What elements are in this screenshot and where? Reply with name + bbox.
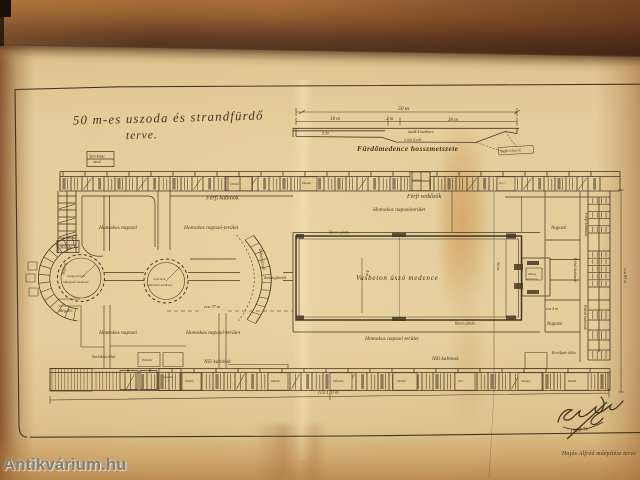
svg-text:Homokos napozó: Homokos napozó — [98, 330, 137, 336]
svg-text:feljáró lépcső: feljáró lépcső — [501, 148, 521, 153]
svg-text:Napozó: Napozó — [546, 322, 563, 327]
svg-text:Gyógyvizű és: Gyógyvizű és — [67, 274, 86, 278]
svg-text:0.90: 0.90 — [322, 132, 329, 136]
svg-text:W.C.: W.C. — [458, 379, 464, 383]
svg-text:cca 37 m: cca 37 m — [204, 304, 221, 309]
svg-text:Zuhanyfürdők: Zuhanyfürdők — [264, 275, 287, 280]
svg-text:Homokos napozó terület: Homokos napozó terület — [364, 336, 419, 342]
svg-text:Szén koksz: Szén koksz — [89, 155, 105, 159]
svg-text:Homokos napozó-terület: Homokos napozó-terület — [185, 330, 241, 336]
svg-text:Hajós Alfréd műépítész terve: Hajós Alfréd műépítész terve — [561, 450, 636, 457]
svg-text:Megálló: Megálló — [58, 308, 72, 313]
svg-text:terve.: terve. — [126, 129, 158, 142]
svg-text:Napozó: Napozó — [550, 226, 567, 231]
svg-text:Öltöző: Öltöző — [230, 181, 239, 186]
svg-text:hidegvizű medence: hidegvizű medence — [63, 280, 89, 284]
svg-text:4 m: 4 m — [365, 270, 370, 276]
svg-text:Férfi vetkőzők: Férfi vetkőzők — [406, 193, 441, 200]
svg-text:Zuhany: Zuhany — [521, 379, 531, 383]
svg-text:W.C.: W.C. — [499, 181, 505, 185]
svg-text:mosó: mosó — [93, 160, 101, 164]
svg-text:Mosdó: Mosdó — [301, 181, 311, 185]
svg-text:Beton járda: Beton járda — [329, 230, 349, 235]
svg-text:lejtős fenék: lejtős fenék — [404, 138, 421, 142]
svg-text:Surlókúti állás: Surlókúti állás — [92, 354, 116, 359]
svg-text:Műszaki: Műszaki — [332, 379, 344, 383]
svg-text:Öltöző: Öltöző — [185, 378, 194, 383]
svg-text:cca 85 m: cca 85 m — [623, 268, 628, 284]
svg-text:Meleg: Meleg — [527, 272, 537, 276]
svg-text:cca 4 m: cca 4 m — [546, 307, 558, 311]
svg-text:Férfi kabinok: Férfi kabinok — [205, 195, 239, 202]
svg-text:Külső kabinok: Külső kabinok — [583, 304, 588, 330]
svg-text:cca 170 m: cca 170 m — [318, 391, 339, 396]
svg-text:50 m: 50 m — [496, 262, 501, 270]
svg-text:Homokos napozóterület: Homokos napozóterület — [372, 207, 426, 213]
svg-text:Raktár: Raktár — [567, 379, 577, 383]
svg-text:50 m: 50 m — [398, 106, 409, 112]
svg-text:Gyermek: Gyermek — [153, 277, 166, 281]
svg-text:Öltöző: Öltöző — [397, 378, 406, 383]
svg-text:2 m: 2 m — [386, 117, 394, 122]
svg-text:Homokos napozó: Homokos napozó — [98, 225, 137, 231]
svg-text:Zuhany: Zuhany — [412, 178, 422, 182]
svg-text:Kerékpár állás: Kerékpár állás — [551, 350, 576, 355]
svg-text:30 m: 30 m — [448, 118, 458, 123]
svg-text:lubickoló-medence: lubickoló-medence — [147, 283, 173, 287]
svg-text:18 m: 18 m — [330, 117, 340, 122]
svg-text:Férfi kabinok: Férfi kabinok — [584, 212, 589, 236]
svg-text:víztorony: víztorony — [526, 277, 539, 281]
svg-text:ruhatár: ruhatár — [163, 375, 174, 379]
svg-text:Beton járda: Beton járda — [455, 321, 475, 326]
svg-text:Felső kabinok: Felső kabinok — [573, 257, 578, 282]
svg-text:Női kabinok: Női kabinok — [431, 355, 459, 362]
svg-text:Zuhanyfürdő: Zuhanyfürdő — [258, 248, 267, 271]
svg-text:Fürdőmedence hosszmetszete: Fürdőmedence hosszmetszete — [357, 144, 459, 153]
svg-text:50 m-es uszoda és strandfürdő: 50 m-es uszoda és strandfürdő — [73, 109, 264, 128]
svg-text:Női kabinok: Női kabinok — [203, 358, 231, 365]
svg-text:Homokos napozó-terület: Homokos napozó-terület — [183, 225, 239, 231]
svg-text:Mosoda: Mosoda — [59, 246, 72, 250]
svg-text:úszók 4 medence: úszók 4 medence — [408, 130, 434, 134]
svg-text:Pénztár: Pénztár — [141, 358, 153, 362]
svg-text:Mosdó: Mosdó — [270, 379, 280, 383]
